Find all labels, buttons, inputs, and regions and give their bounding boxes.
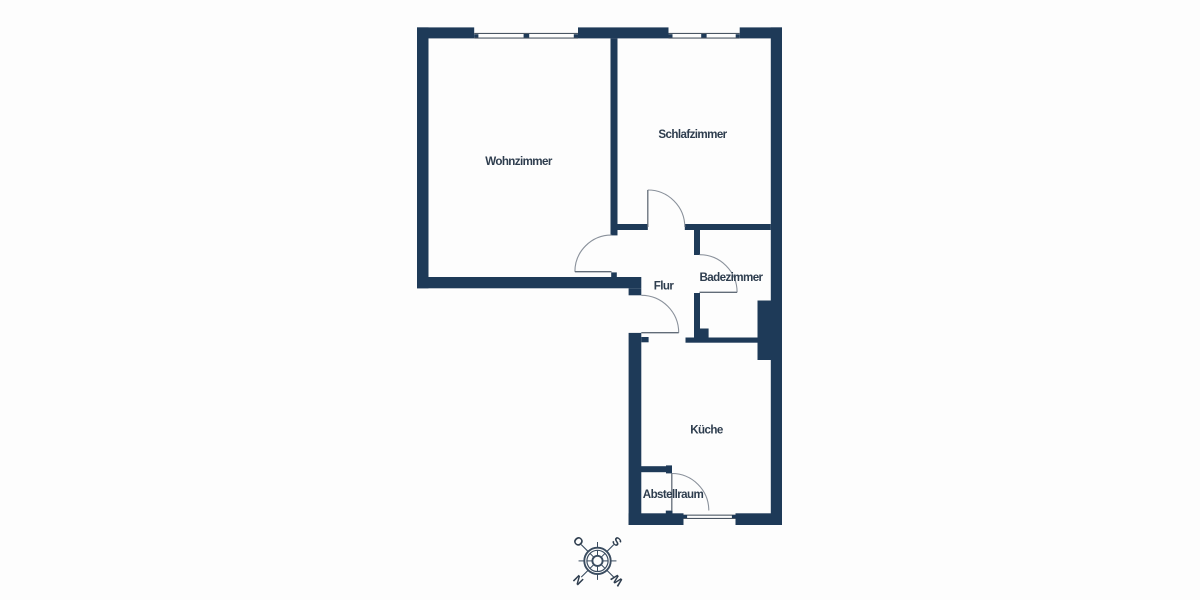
svg-text:Küche: Küche: [690, 423, 724, 436]
svg-text:Abstellraum: Abstellraum: [643, 488, 704, 501]
svg-text:Flur: Flur: [654, 280, 675, 293]
svg-text:Badezimmer: Badezimmer: [700, 271, 764, 284]
svg-text:Schlafzimmer: Schlafzimmer: [658, 128, 727, 141]
svg-text:Wohnzimmer: Wohnzimmer: [485, 155, 553, 168]
